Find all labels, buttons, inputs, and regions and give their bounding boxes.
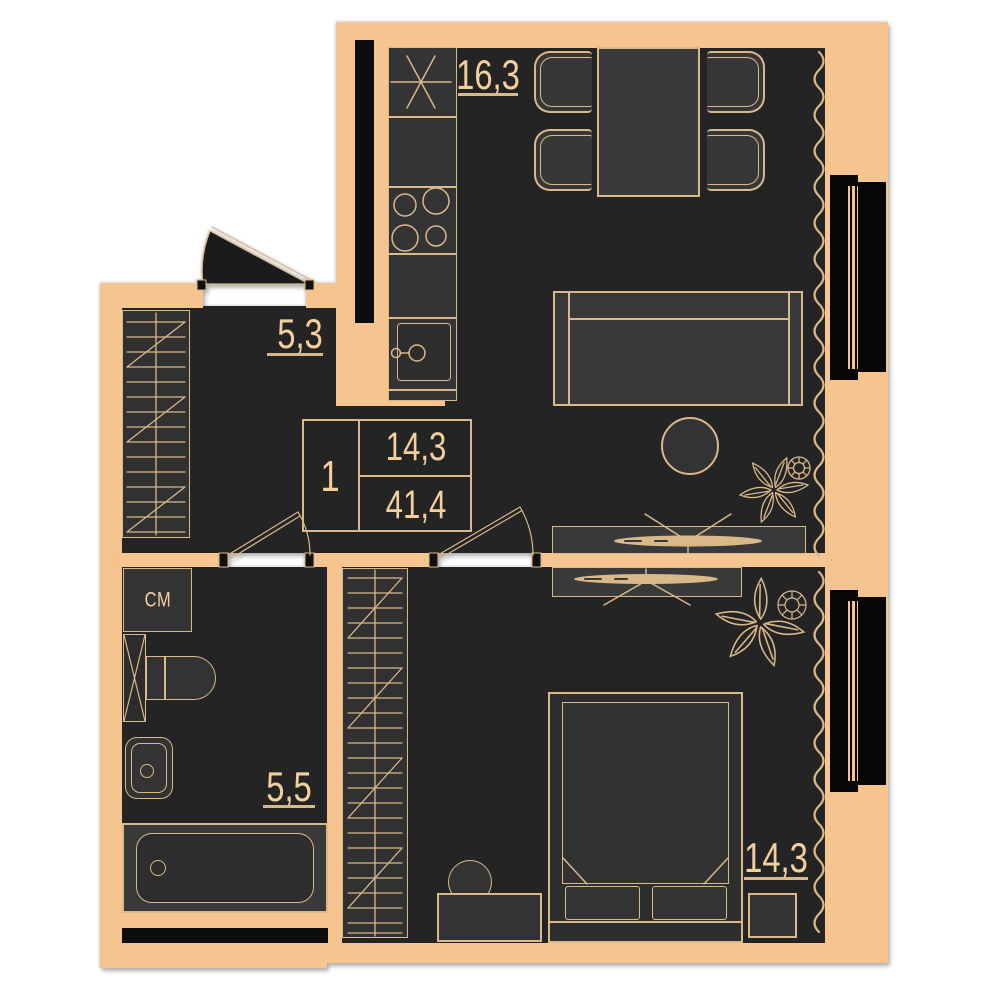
cooker-hood-icon: [391, 56, 451, 108]
living-curtain-icon: [815, 52, 824, 556]
entrance-door: [197, 227, 314, 290]
bathroom-door: [219, 512, 314, 567]
apartment-floor-plan: 1 14,3 41,4 16,3 5,3 5,5 14,3 СМ: [0, 0, 1000, 1000]
symbols-layer: [0, 0, 1000, 1000]
washing-machine-label: СМ: [145, 590, 172, 611]
shaft-x-icon: [124, 635, 145, 721]
bedroom-curtain-icon: [815, 572, 824, 932]
kitchen-faucet-icon: [392, 345, 426, 361]
info-box-horizontal-divider: [360, 475, 470, 477]
kitchen-living-area-label: 16,3: [456, 54, 520, 96]
bathroom-area-underline: [263, 805, 315, 808]
stove-burners-icon: [392, 188, 449, 251]
bedroom-area-underline: [744, 877, 808, 880]
hallway-area-underline: [267, 353, 323, 356]
floor-plan-canvas: 1 14,3 41,4 16,3 5,3 5,5 14,3 СМ: [0, 0, 1000, 1000]
plant-bedroom-icon: [715, 578, 806, 667]
rooms-count-value: 1: [320, 455, 339, 499]
living-area-value: 14,3: [386, 427, 447, 467]
hallway-area-label: 5,3: [277, 313, 323, 355]
tv-bedroom-icon: [574, 569, 718, 605]
plant-living-icon: [740, 457, 810, 523]
total-area-value: 41,4: [386, 485, 447, 525]
tv-living-icon: [614, 514, 762, 553]
kitchen-living-area-underline: [458, 93, 518, 96]
bathroom-area-label: 5,5: [266, 766, 312, 808]
hallway-wardrobe-hatching: [127, 313, 185, 535]
bedroom-area-label: 14,3: [744, 837, 808, 879]
bed-blanket-folds: [563, 858, 728, 884]
bedroom-wardrobe-hatching: [348, 570, 402, 936]
